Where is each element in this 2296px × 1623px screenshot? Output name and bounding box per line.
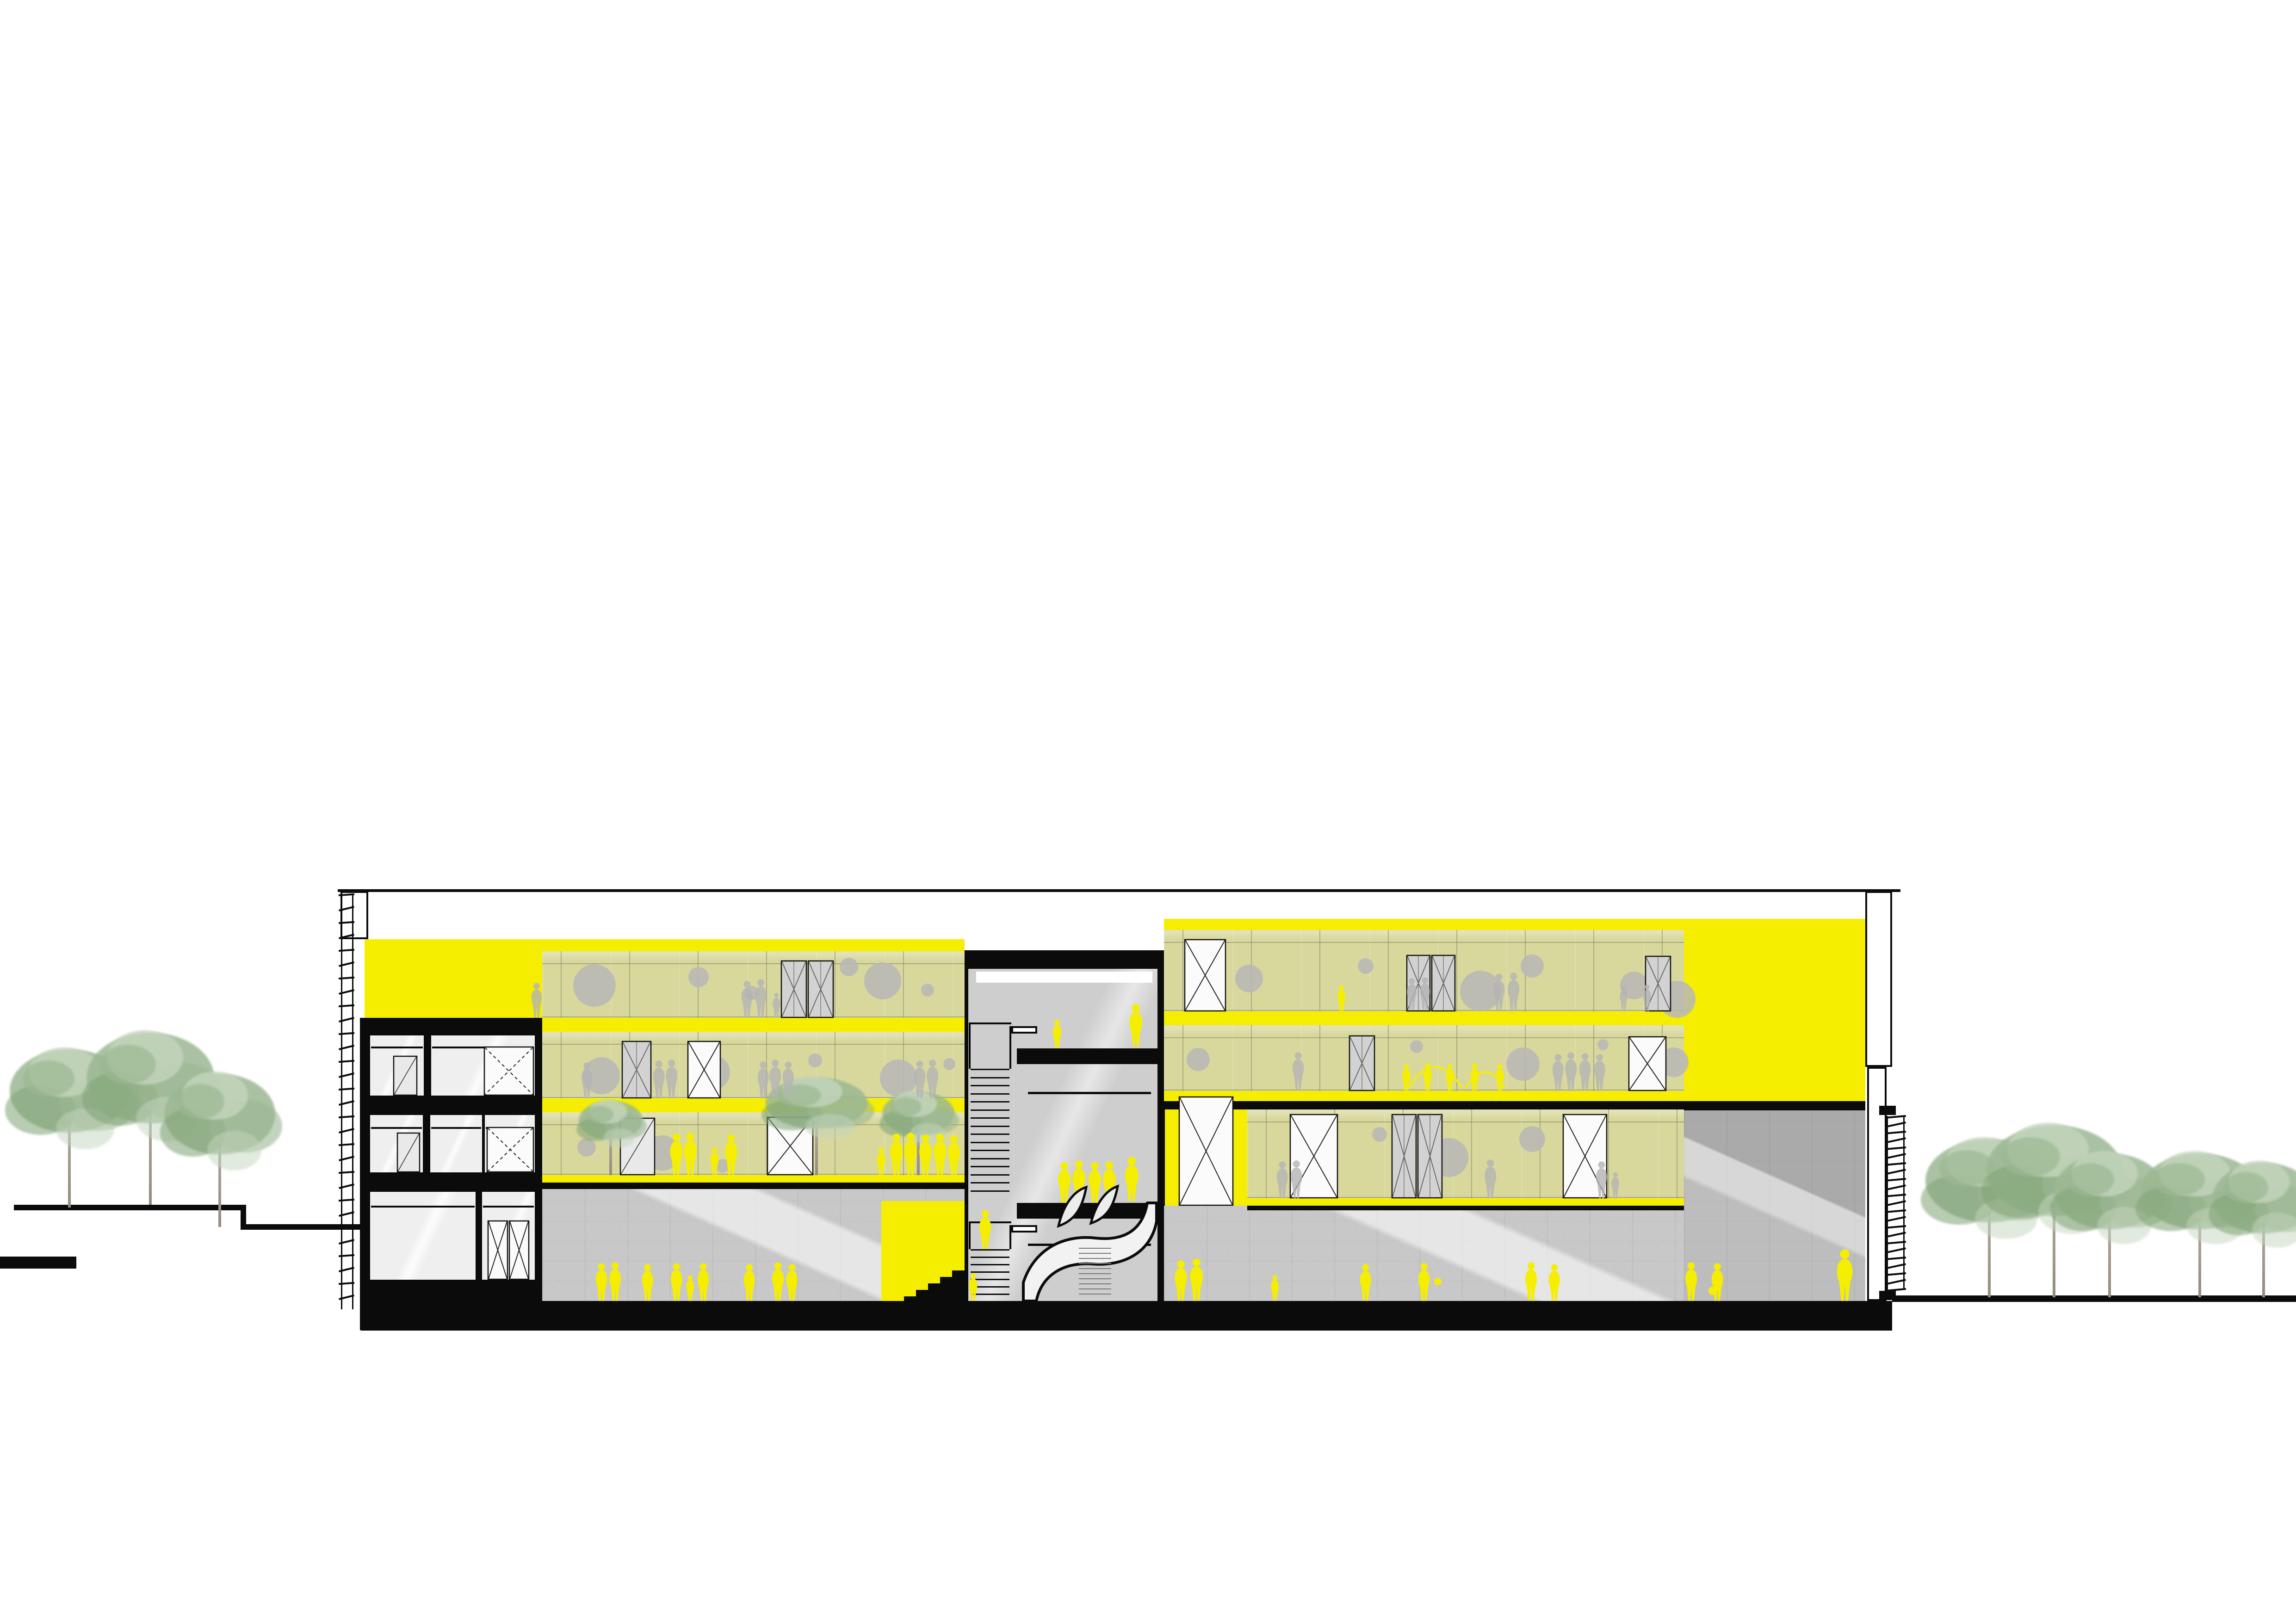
child-silhouette [771, 993, 782, 1018]
child-silhouette [1422, 1063, 1433, 1091]
louver-block-top [1879, 1106, 1896, 1115]
circle-graphic [921, 984, 934, 997]
roof-line [338, 889, 1900, 892]
glass-door [1417, 1114, 1442, 1198]
person-silhouette [1101, 1161, 1118, 1203]
stair-landing [1011, 1225, 1037, 1233]
core-left-wall [965, 969, 968, 1301]
child-silhouette [1494, 1064, 1505, 1091]
stair-tread [971, 1134, 1009, 1135]
yellow-volume-right [1684, 919, 1865, 1101]
person-silhouette [640, 1264, 656, 1301]
mullion [1540, 1109, 1541, 1198]
person-silhouette [1594, 1161, 1609, 1198]
transom-l1-a [371, 1127, 422, 1129]
circle-graphic [1597, 1039, 1609, 1050]
mullion [1182, 1025, 1183, 1091]
circle-graphic [1506, 1047, 1540, 1081]
band-a-right [1164, 1011, 1684, 1025]
circle-graphic [864, 962, 901, 999]
tree-canopy-blob [586, 1106, 613, 1123]
stair-tread [971, 1069, 1009, 1070]
tree-canopy-blob [2252, 1213, 2296, 1247]
person-silhouette [1172, 1260, 1189, 1301]
child-silhouette [1336, 985, 1347, 1011]
circle-graphic [808, 1053, 822, 1067]
transom-line [542, 963, 965, 964]
person-silhouette [663, 1059, 680, 1098]
tree-canopy-blob [890, 1097, 922, 1116]
portal-jamb-left [1165, 1096, 1179, 1206]
dimension-staff-rail [341, 894, 342, 1309]
strip-c-right [1247, 1198, 1684, 1206]
person-silhouette [1418, 977, 1432, 1010]
tree-canopy-blob [207, 1131, 261, 1170]
band-b-right [1164, 1091, 1684, 1101]
circle-graphic [943, 1058, 955, 1070]
glass-door [1392, 1114, 1417, 1198]
transom-l0-a [371, 1206, 475, 1208]
stair-tread [971, 1158, 1009, 1159]
room-l1-b [430, 1115, 482, 1172]
stair-tread [971, 1126, 1009, 1127]
x-door [1179, 1096, 1233, 1206]
yellow-roof-volume-left [365, 939, 542, 1018]
right-edge-column [1867, 1067, 1887, 1301]
person-silhouette [1482, 1159, 1498, 1198]
slab-b-right [1164, 1101, 1684, 1109]
tree-canopy-blob [2224, 1172, 2268, 1203]
mullion [629, 951, 630, 1018]
tree-canopy-blob [805, 1114, 855, 1139]
person-silhouette [723, 1134, 740, 1175]
person-silhouette [924, 1059, 941, 1098]
glass-door [1431, 955, 1455, 1011]
person-silhouette [1405, 978, 1418, 1010]
child-silhouette [1401, 1064, 1412, 1091]
stair-railing-post [969, 1221, 971, 1249]
mullion [1251, 1025, 1252, 1091]
person-silhouette [1683, 1262, 1699, 1301]
glass-door [781, 960, 807, 1018]
person-silhouette [1523, 1262, 1539, 1301]
glass-door [808, 960, 834, 1018]
person-silhouette [579, 1062, 594, 1098]
portal-jamb-right [1233, 1096, 1247, 1206]
stair-tread [971, 1077, 1009, 1078]
mullion [1677, 1109, 1677, 1198]
terrain-far-left-bar [0, 1257, 76, 1269]
transom-l0-b [483, 1206, 534, 1208]
person-silhouette [607, 1262, 623, 1301]
child-silhouette [1610, 1172, 1621, 1198]
architectural-section-drawing [0, 0, 2296, 1623]
mullion [1266, 1109, 1267, 1198]
mullion [561, 1112, 562, 1175]
person-silhouette [1358, 1264, 1374, 1301]
person-silhouette [780, 1061, 796, 1098]
stair-tread [971, 1182, 1009, 1183]
slabline-c-left [542, 1183, 965, 1189]
person-silhouette [1288, 1160, 1304, 1198]
mullion [1456, 1025, 1457, 1091]
person-silhouette [1505, 973, 1522, 1011]
child-silhouette [1641, 985, 1652, 1011]
mullion [561, 951, 562, 1018]
core-slab-1 [1017, 1048, 1157, 1064]
person-silhouette [681, 1133, 699, 1175]
child-silhouette [1051, 1020, 1063, 1048]
core-slab-2 [1017, 1203, 1157, 1219]
person-silhouette [1547, 1264, 1562, 1301]
stair-railing-cap [969, 1022, 1011, 1024]
person-silhouette [1188, 1258, 1206, 1301]
slabline-c-right [1247, 1206, 1684, 1210]
person-silhouette [1491, 973, 1507, 1011]
person-silhouette [753, 979, 769, 1018]
left-parapet [340, 891, 368, 939]
person-silhouette [784, 1264, 800, 1301]
mullion [1471, 1109, 1472, 1198]
circle-graphic [1235, 965, 1263, 992]
person-silhouette [1275, 1161, 1290, 1198]
stair-tread [971, 1190, 1009, 1192]
stair-tread [971, 1101, 1009, 1103]
stair-tread [971, 1264, 1009, 1265]
x-door [1628, 1036, 1666, 1091]
transom-line [1164, 942, 1684, 943]
stair-tread [971, 1166, 1009, 1167]
x-door [1184, 939, 1226, 1011]
stair-landing [1011, 1026, 1037, 1034]
child-silhouette [1444, 1064, 1455, 1091]
stair-tread [971, 1174, 1009, 1176]
person-silhouette [1127, 1004, 1145, 1047]
tree-canopy-blob [23, 1060, 74, 1096]
transom-l1-b [431, 1127, 481, 1129]
core-ceiling-2 [1028, 1244, 1151, 1246]
mullion [1388, 1025, 1389, 1091]
person-silhouette [668, 1263, 684, 1301]
person-silhouette [529, 983, 544, 1018]
person-silhouette [1577, 1053, 1593, 1091]
stair-tread [971, 1085, 1009, 1086]
room-l0-a [370, 1192, 476, 1280]
circle-graphic [1519, 1126, 1545, 1152]
person-silhouette [977, 1210, 993, 1249]
x-window [487, 1127, 534, 1172]
x-window [484, 1047, 534, 1096]
transom-line [542, 1044, 965, 1045]
base-plinth [361, 1301, 1892, 1331]
swing-door [393, 1056, 417, 1096]
x-door [509, 1220, 529, 1280]
right-parapet [1865, 891, 1892, 1067]
person-silhouette [1070, 1160, 1088, 1203]
child-silhouette [709, 1147, 720, 1175]
person-silhouette [1592, 1054, 1608, 1091]
swing-door [397, 1133, 420, 1172]
x-door [488, 1220, 508, 1280]
child-silhouette [1469, 1063, 1480, 1091]
person-silhouette [946, 1135, 962, 1175]
transom-line [1164, 1037, 1684, 1038]
circle-graphic [1187, 1048, 1210, 1071]
strip-c-left [542, 1175, 965, 1183]
child-silhouette [967, 1273, 979, 1301]
yellow-sunken-room [881, 1201, 965, 1301]
stair-tread [971, 1249, 1009, 1251]
person-silhouette [1834, 1249, 1856, 1301]
mullion [903, 951, 904, 1018]
tree-left-3 [160, 1074, 280, 1227]
mullion [561, 1032, 562, 1098]
mullion [1319, 1025, 1320, 1091]
child-silhouette [875, 1147, 887, 1175]
fascia-a-right [1164, 919, 1684, 930]
glass-door [622, 1041, 651, 1098]
core-top-bar [965, 950, 1164, 969]
stair-tread [971, 1271, 1009, 1273]
tree-canopy-blob [2153, 1163, 2205, 1196]
stair-railing-post [969, 1022, 971, 1069]
transom-l2-a [371, 1047, 423, 1048]
stair-tread [971, 1093, 1009, 1095]
tree-canopy-blob [100, 1045, 156, 1084]
circle-graphic [1410, 1040, 1423, 1053]
tree-indoor-1 [576, 1101, 645, 1175]
child-silhouette [1618, 985, 1629, 1011]
slab-right-block [1684, 1101, 1865, 1110]
person-silhouette [742, 1264, 757, 1301]
stair-tread [971, 1117, 1009, 1119]
circle-graphic [840, 958, 858, 976]
band-a-left [542, 1018, 965, 1032]
circle-graphic [688, 967, 709, 987]
stair-tread [971, 1150, 1009, 1151]
person-silhouette [1290, 1052, 1306, 1090]
circle-graphic [1358, 958, 1374, 974]
mullion [835, 951, 835, 1018]
stair-tread [971, 1109, 1009, 1111]
circle-graphic [573, 964, 616, 1007]
spiral-stair-and-details-overlay [0, 0, 2296, 1623]
tree-right-5 [2208, 1163, 2296, 1297]
person-silhouette [695, 1263, 711, 1301]
circle-graphic [1372, 1127, 1387, 1142]
stair-tread [971, 1257, 1009, 1258]
stair-tread [971, 1142, 1009, 1143]
circle-graphic [1521, 954, 1544, 978]
tree-canopy-blob [603, 1128, 635, 1147]
child-silhouette [1269, 1275, 1281, 1301]
person-silhouette [1122, 1157, 1141, 1201]
x-door [687, 1041, 721, 1098]
glass-door [1349, 1035, 1375, 1091]
core-skylight [976, 972, 1152, 983]
person-silhouette [1709, 1263, 1725, 1301]
core-ceiling-1 [1028, 1092, 1151, 1094]
person-silhouette [1416, 1263, 1432, 1301]
fascia-a-left [542, 939, 965, 951]
child-silhouette [685, 1275, 696, 1301]
